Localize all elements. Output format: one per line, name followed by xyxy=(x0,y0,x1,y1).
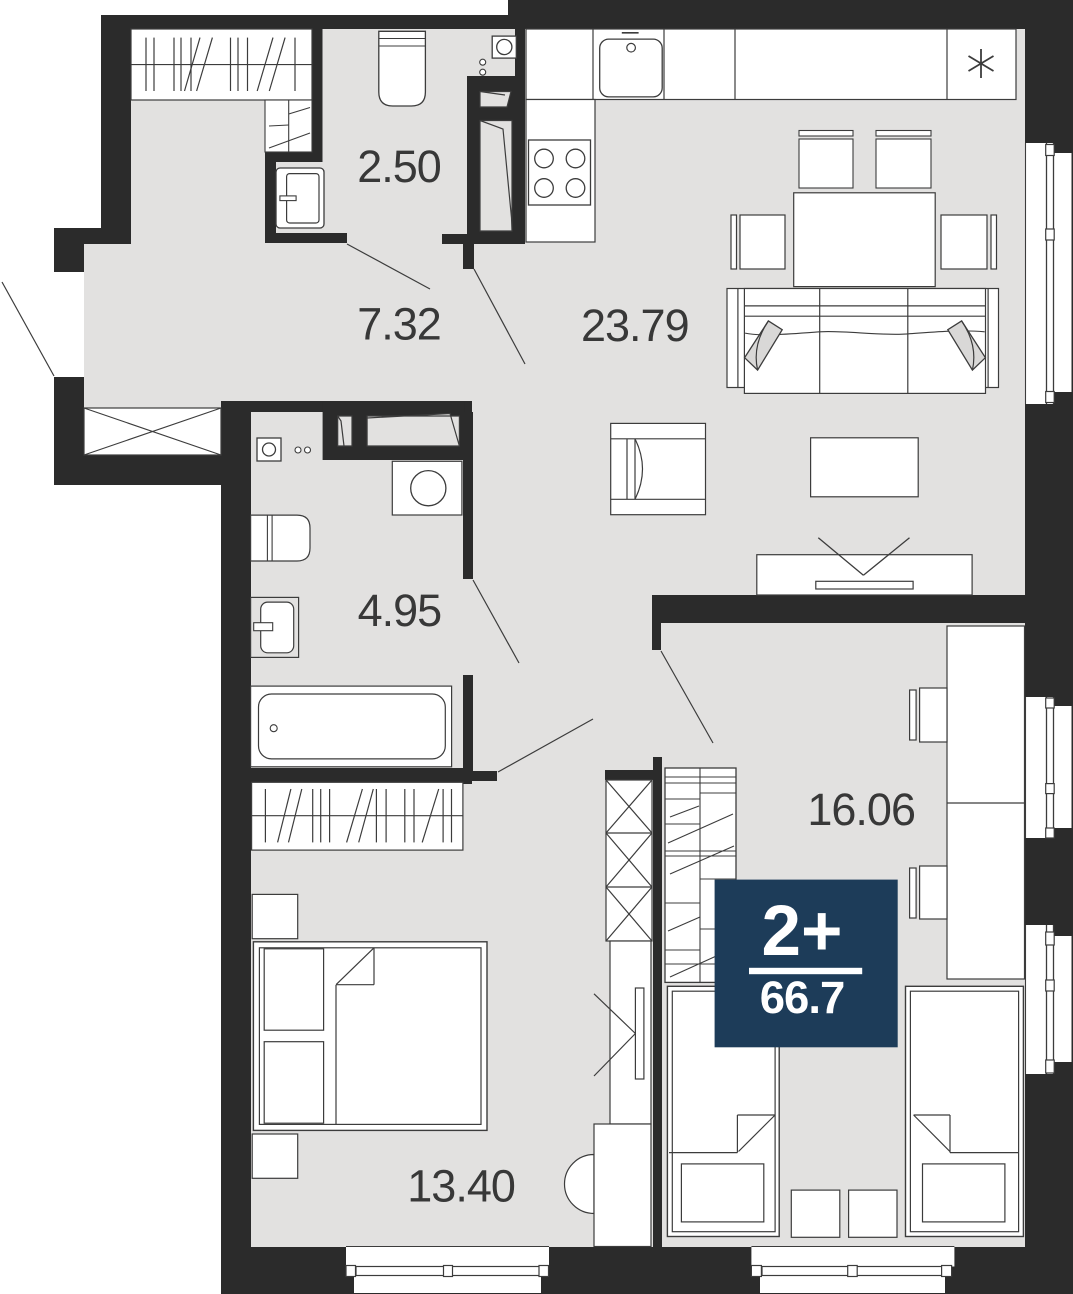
svg-text:13.40: 13.40 xyxy=(407,1160,515,1211)
svg-text:2+: 2+ xyxy=(762,892,843,971)
svg-text:66.7: 66.7 xyxy=(760,972,845,1023)
svg-text:23.79: 23.79 xyxy=(581,300,689,351)
svg-text:4.95: 4.95 xyxy=(358,585,442,636)
svg-text:16.06: 16.06 xyxy=(807,784,915,835)
svg-text:7.32: 7.32 xyxy=(357,299,441,350)
svg-text:2.50: 2.50 xyxy=(357,141,441,192)
